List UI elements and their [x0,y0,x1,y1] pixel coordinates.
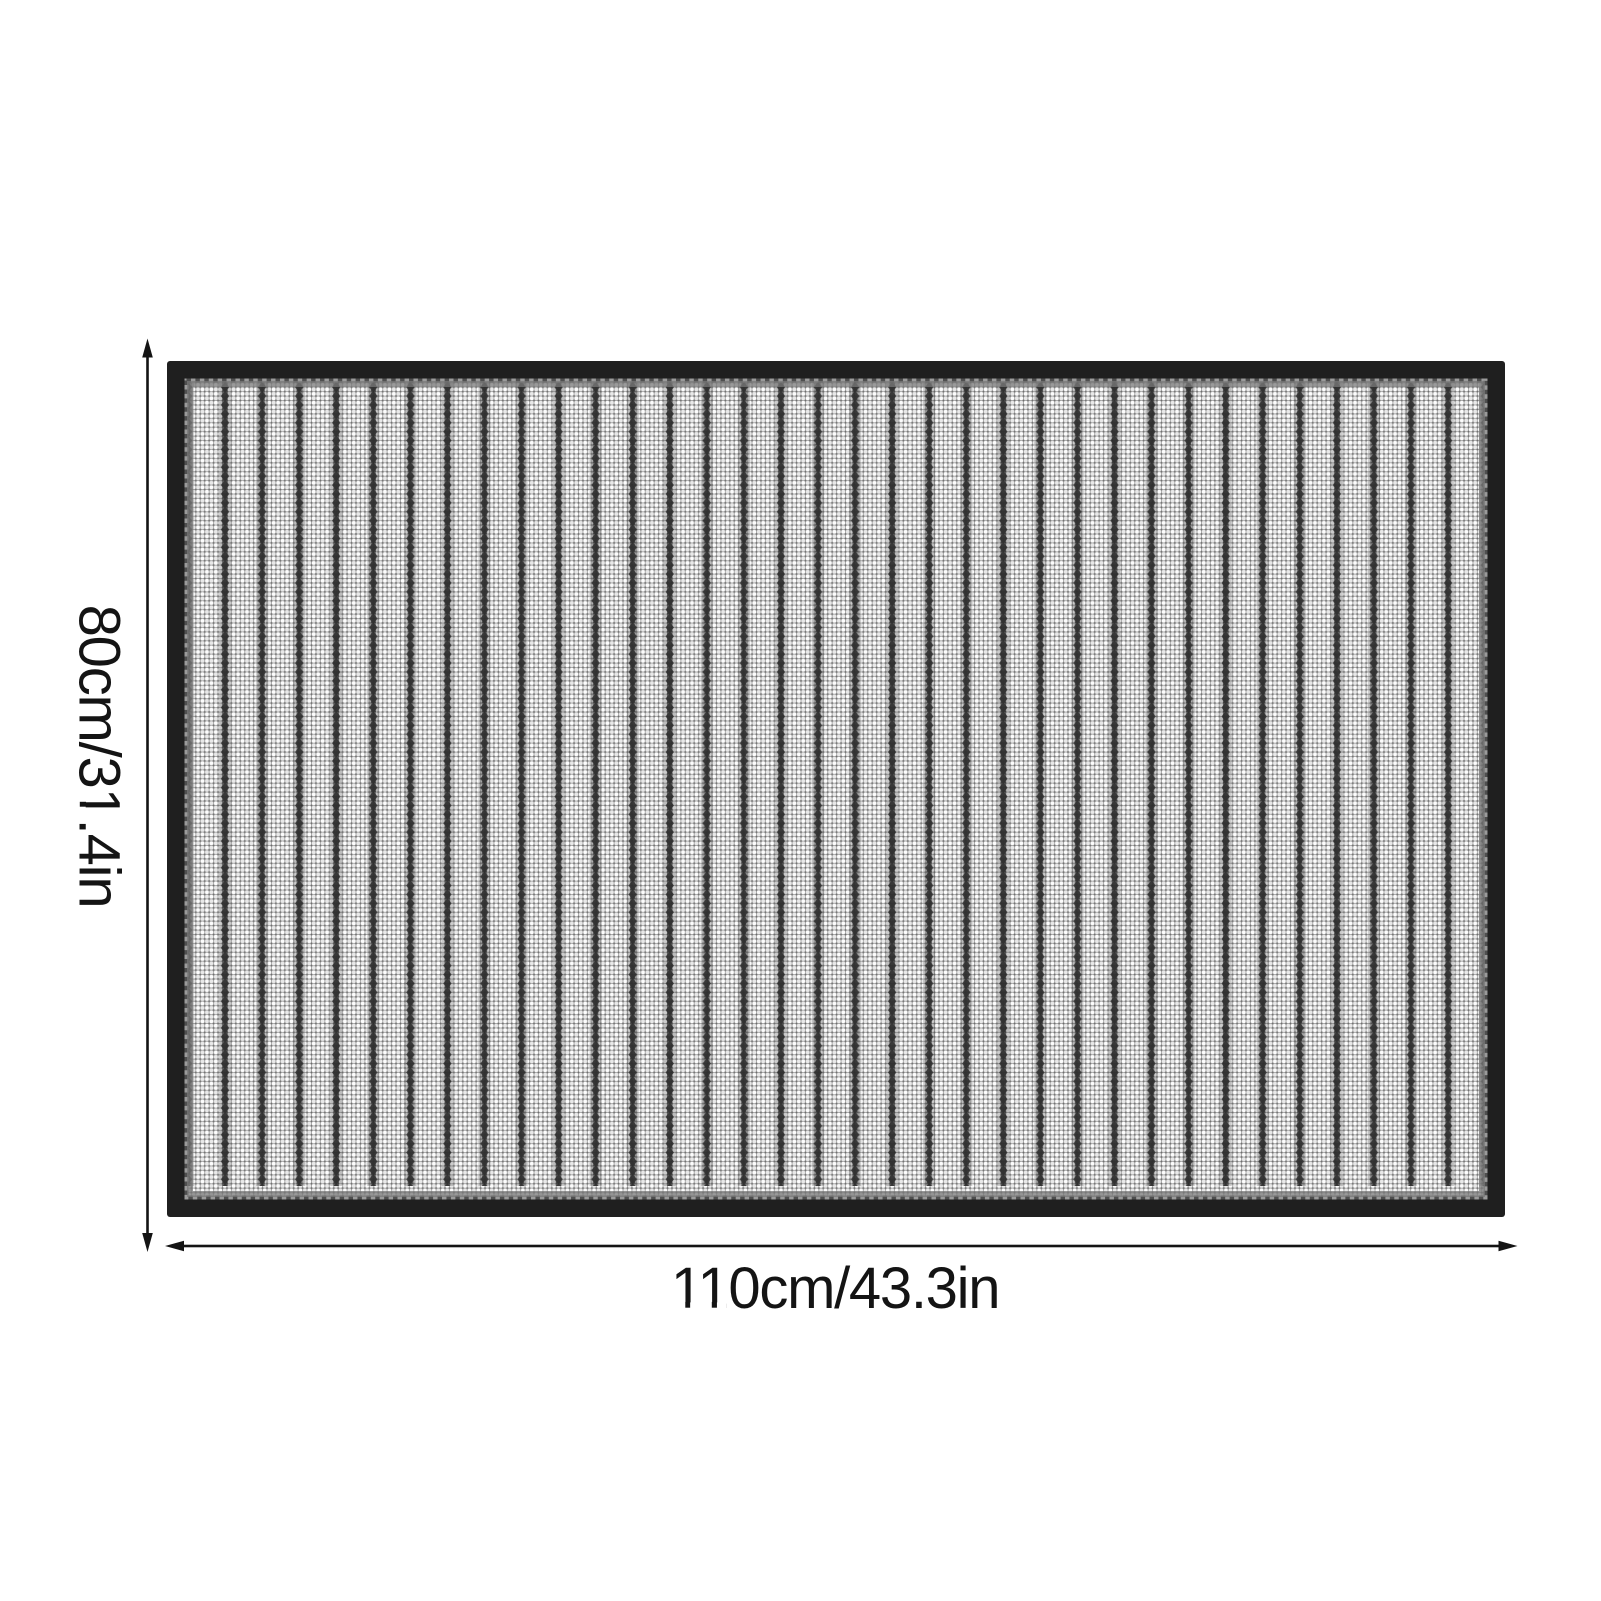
svg-text:80cm/31.4in: 80cm/31.4in [67,605,132,908]
svg-text:110cm/43.3in: 110cm/43.3in [671,1256,999,1321]
